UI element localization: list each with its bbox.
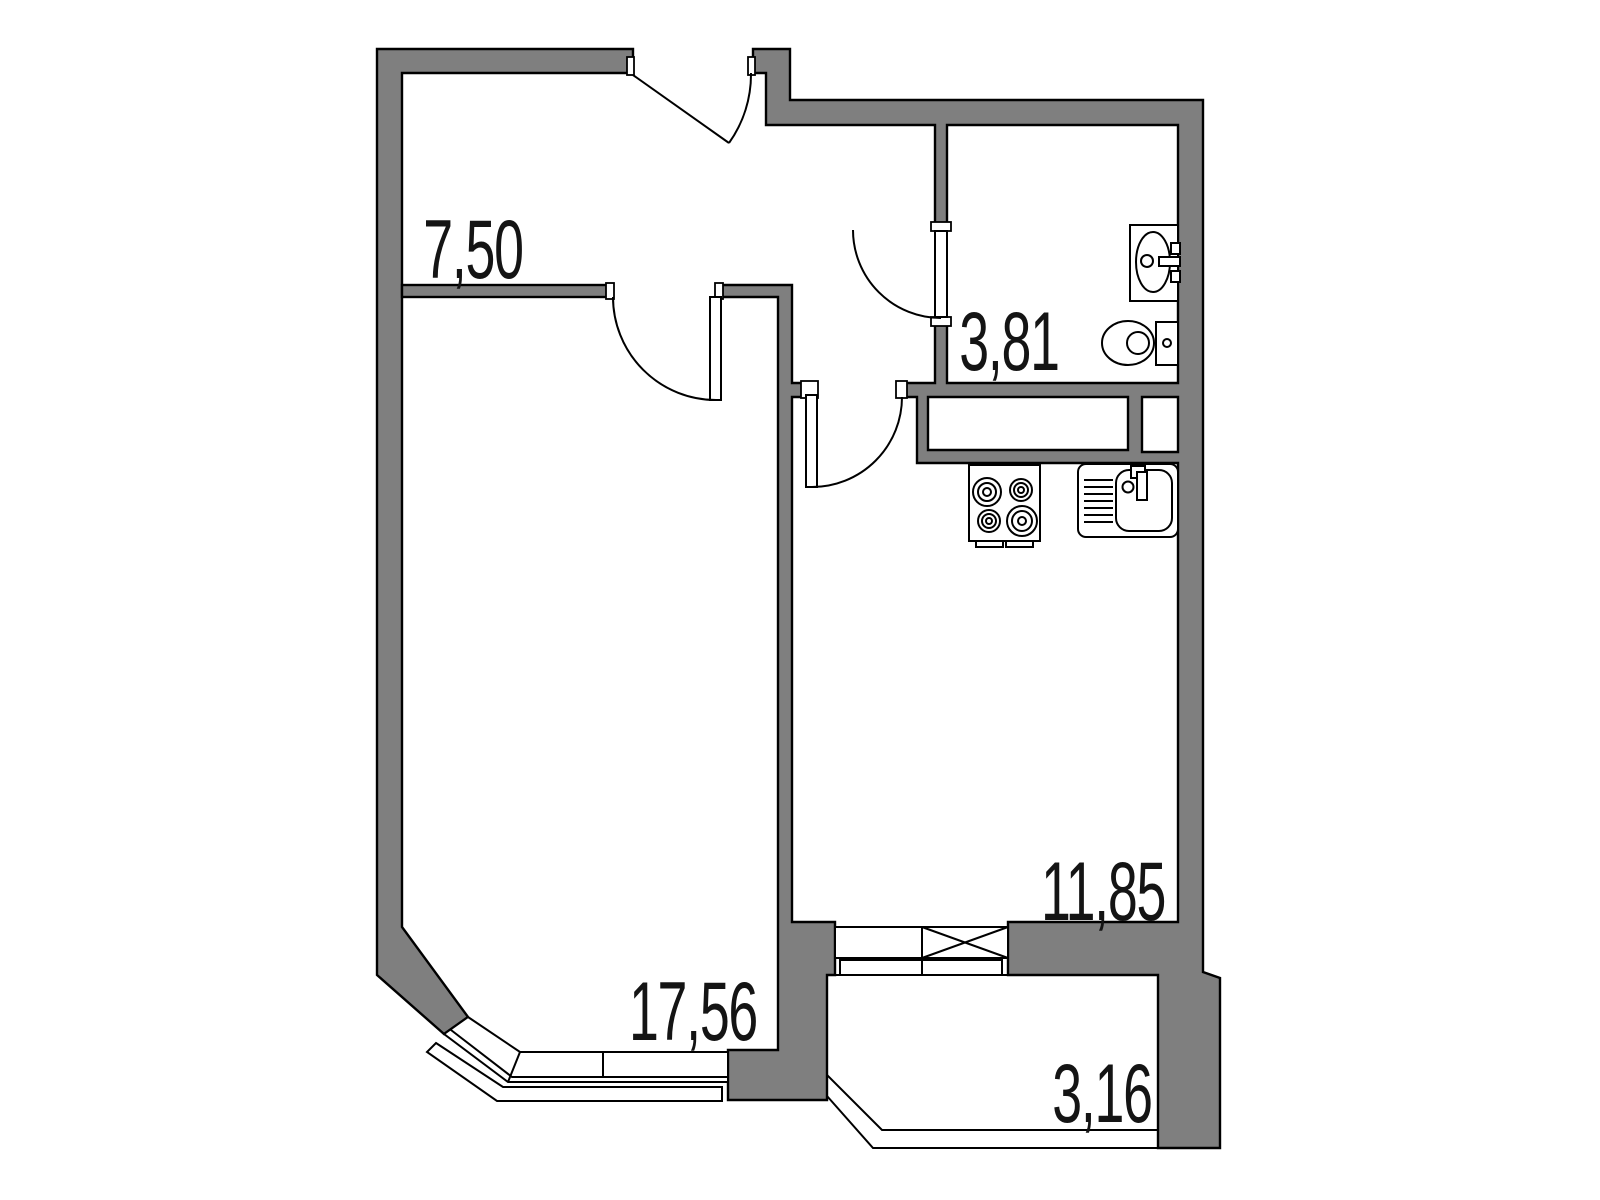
entrance-jamb-right xyxy=(748,57,755,75)
living-door-leaf xyxy=(710,297,721,400)
balcony-door-icon xyxy=(835,927,922,975)
room-label-bathroom: 3,81 xyxy=(959,294,1058,388)
bathroom-door-leaf xyxy=(935,231,947,317)
stove-icon xyxy=(969,465,1040,547)
kitchen-door-jamb-right xyxy=(896,381,907,398)
balcony-window-icon xyxy=(922,927,1008,975)
entrance-door-icon xyxy=(627,57,755,143)
room-label-kitchen: 11,85 xyxy=(1041,844,1165,938)
room-label-living-room: 17,56 xyxy=(629,964,757,1058)
kitchen-door-leaf xyxy=(806,395,817,487)
bathroom-door-icon xyxy=(853,222,951,326)
washbasin-icon xyxy=(1130,225,1180,301)
entrance-jamb-left xyxy=(627,57,634,75)
floor-plan-page: 7,50 3,81 11,85 17,56 3,16 xyxy=(0,0,1600,1200)
toilet-icon xyxy=(1102,321,1178,365)
kitchen-door-icon xyxy=(801,381,907,487)
floor-plan-drawing: 7,50 3,81 11,85 17,56 3,16 xyxy=(0,0,1600,1200)
living-door-jamb-left xyxy=(606,283,614,299)
wall-left-top xyxy=(377,49,633,1034)
kitchen-sink-icon xyxy=(1078,464,1178,537)
living-room-door-icon xyxy=(606,283,723,400)
room-label-balcony: 3,16 xyxy=(1052,1046,1151,1140)
room-label-hallway: 7,50 xyxy=(423,202,522,296)
bathroom-door-jamb-top xyxy=(931,222,951,231)
